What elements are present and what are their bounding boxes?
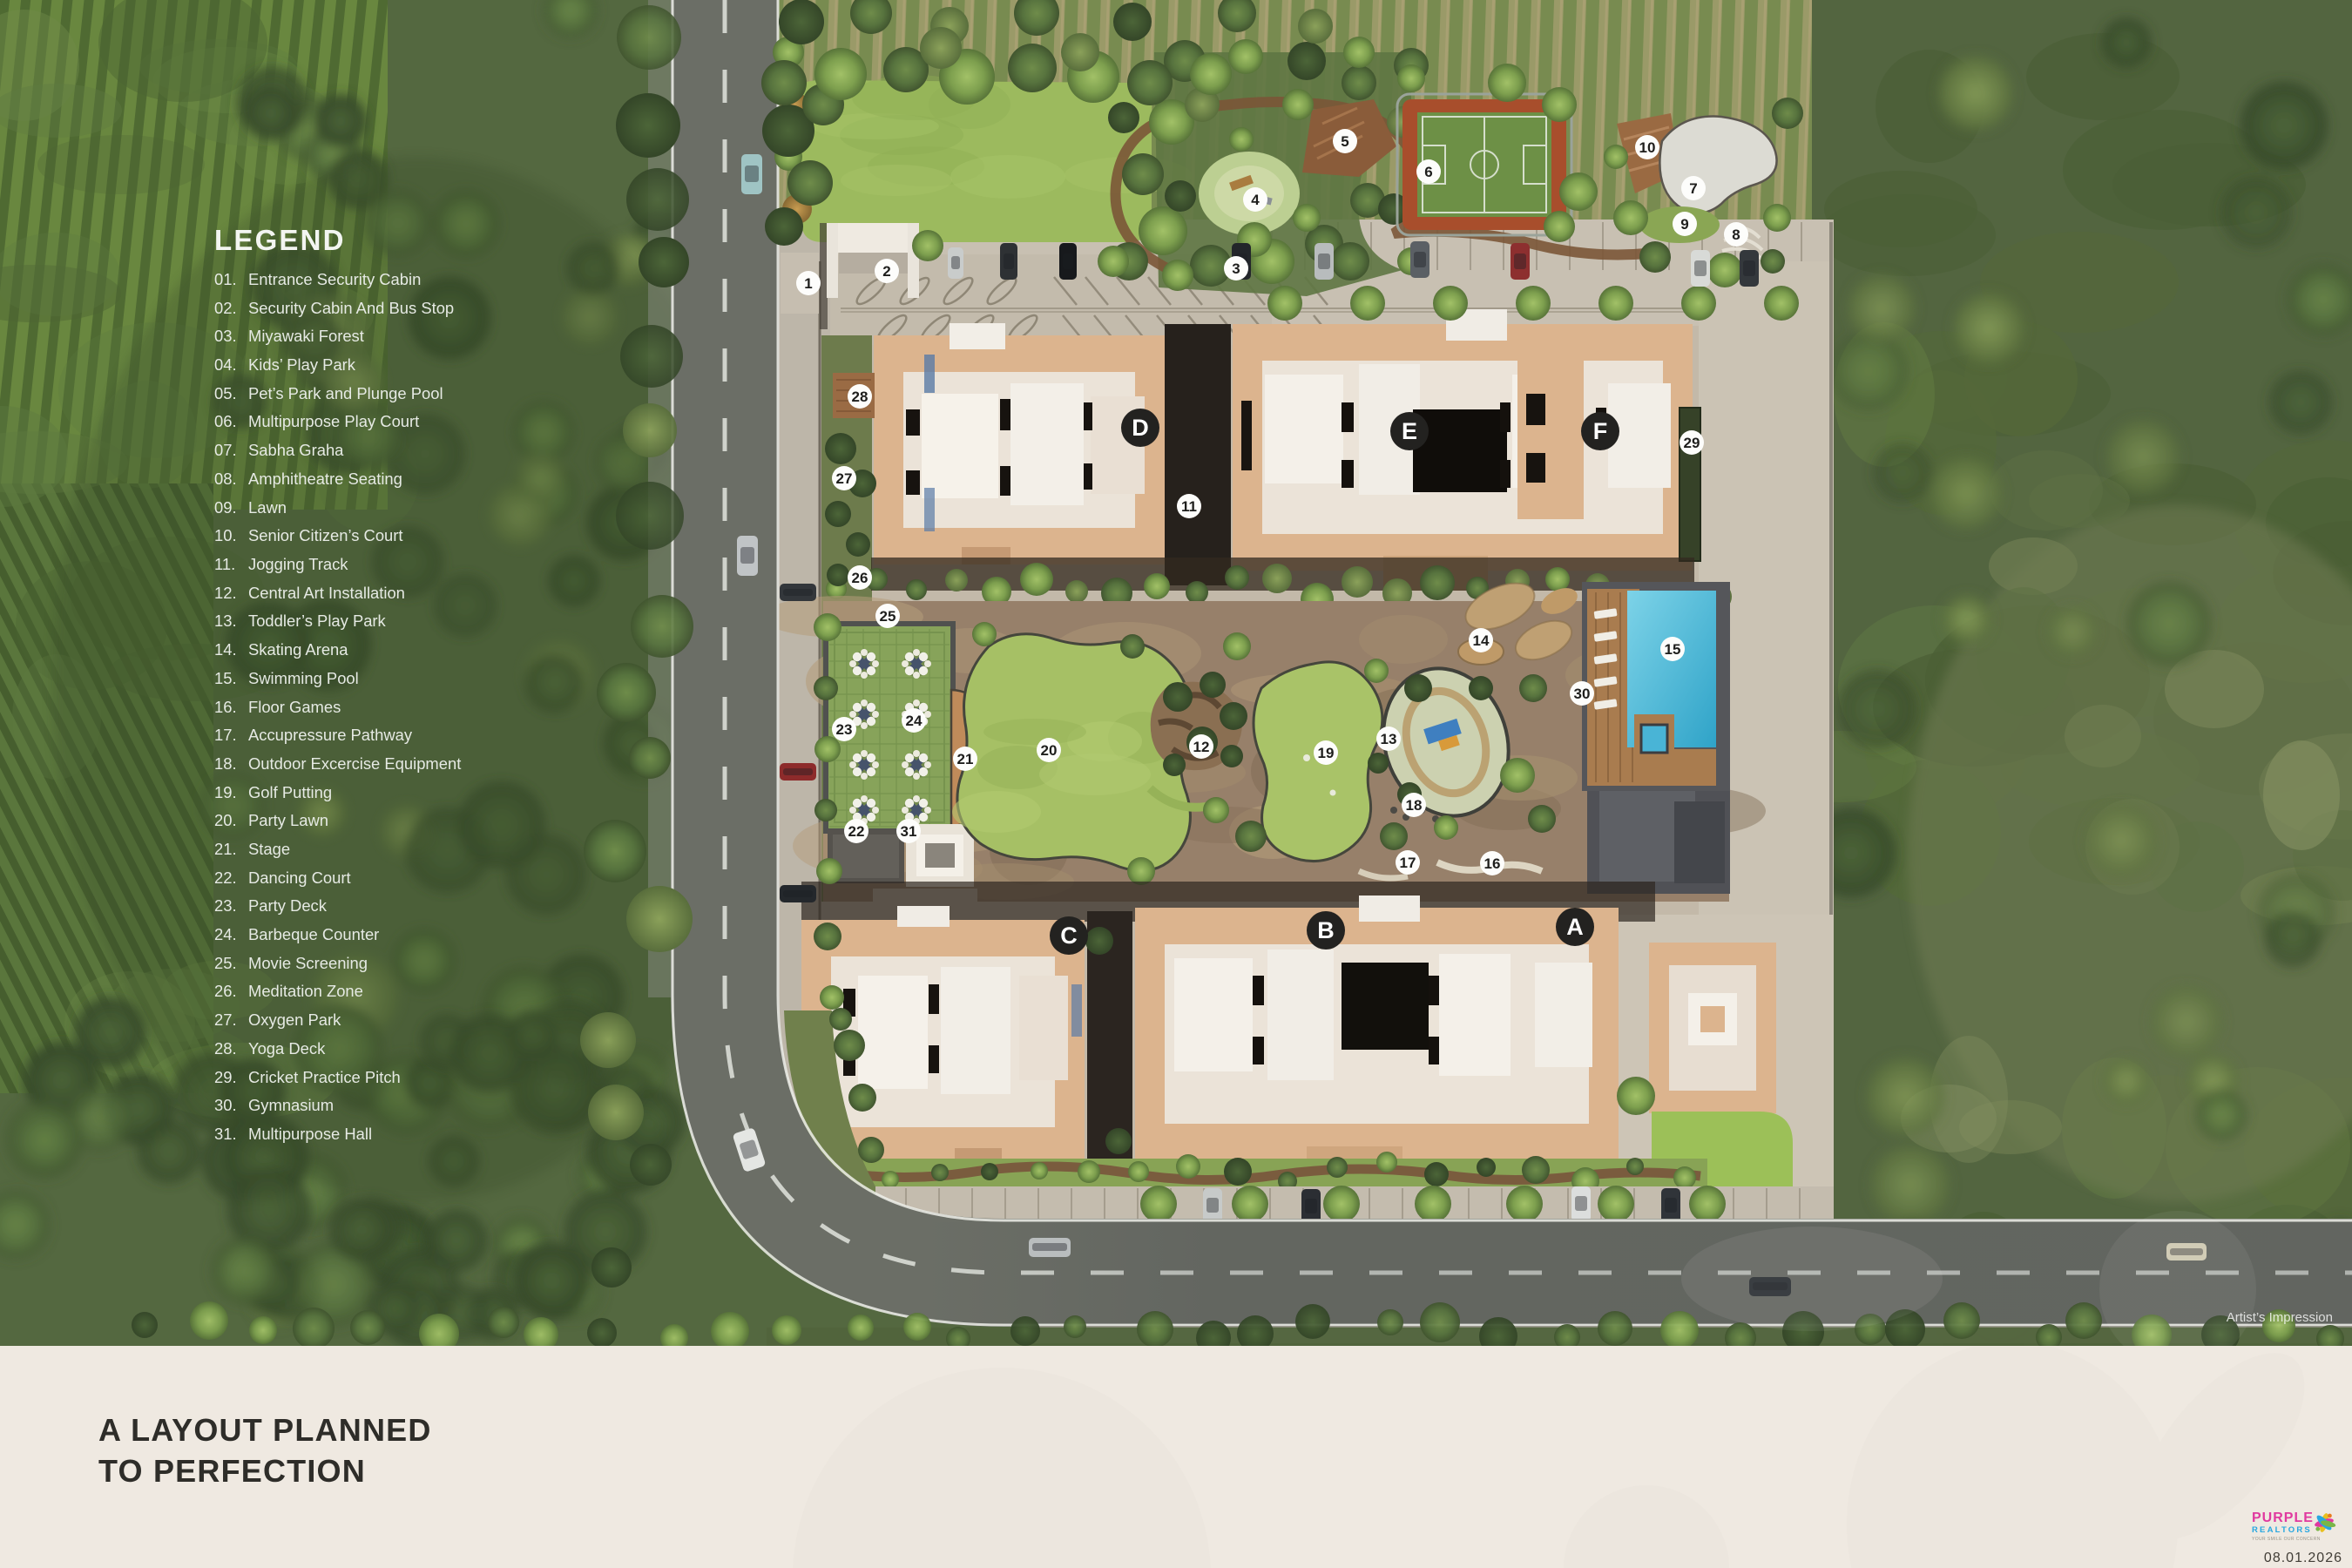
svg-text:03.: 03. [214,327,237,345]
svg-text:15.: 15. [214,669,237,687]
svg-text:Party Deck: Party Deck [248,896,328,915]
svg-text:25.: 25. [214,954,237,972]
svg-text:11: 11 [1181,498,1197,515]
svg-text:TO PERFECTION: TO PERFECTION [98,1453,366,1489]
svg-text:Toddler’s Play Park: Toddler’s Play Park [248,612,387,630]
svg-text:21: 21 [957,751,974,767]
svg-text:5: 5 [1341,133,1348,150]
svg-text:Movie Screening: Movie Screening [248,954,368,972]
svg-text:20.: 20. [214,811,237,829]
svg-text:Security Cabin And Bus Stop: Security Cabin And Bus Stop [248,299,454,317]
svg-text:05.: 05. [214,384,237,402]
svg-text:29: 29 [1684,435,1700,451]
svg-text:11.: 11. [214,555,235,573]
svg-text:29.: 29. [214,1068,237,1086]
svg-text:Swimming Pool: Swimming Pool [248,669,359,687]
svg-text:YOUR SMILE OUR CONCERN: YOUR SMILE OUR CONCERN [2252,1537,2321,1542]
svg-text:08.: 08. [214,470,237,488]
svg-text:17: 17 [1400,855,1416,871]
svg-text:Kids’ Play Park: Kids’ Play Park [248,355,356,374]
svg-text:30: 30 [1574,686,1591,702]
svg-text:Golf Putting: Golf Putting [248,783,332,801]
svg-text:REALTORS: REALTORS [2252,1525,2312,1535]
svg-text:08.01.2026: 08.01.2026 [2264,1551,2342,1565]
svg-text:26: 26 [852,570,868,586]
svg-text:PURPLE: PURPLE [2252,1511,2314,1525]
svg-text:06.: 06. [214,412,237,430]
svg-text:Lawn: Lawn [248,498,287,517]
svg-text:19: 19 [1318,745,1335,761]
svg-text:09.: 09. [214,498,237,517]
svg-text:18.: 18. [214,754,237,773]
svg-text:Party Lawn: Party Lawn [248,811,328,829]
svg-text:8: 8 [1732,226,1740,243]
svg-text:24: 24 [906,713,923,729]
svg-text:D: D [1132,415,1149,441]
svg-text:10.: 10. [214,526,237,544]
svg-text:A LAYOUT PLANNED: A LAYOUT PLANNED [98,1412,432,1448]
svg-text:17.: 17. [214,726,237,744]
svg-text:Gymnasium: Gymnasium [248,1096,334,1114]
svg-text:Miyawaki Forest: Miyawaki Forest [248,327,364,345]
svg-text:28: 28 [852,389,868,405]
svg-text:7: 7 [1689,180,1697,197]
svg-text:Accupressure Pathway: Accupressure Pathway [248,726,413,744]
svg-text:22.: 22. [214,868,237,887]
svg-text:22: 22 [848,823,865,840]
svg-text:B: B [1317,917,1335,943]
svg-text:F: F [1593,418,1608,444]
svg-text:Oxygen Park: Oxygen Park [248,1010,341,1029]
svg-text:16.: 16. [214,698,237,716]
svg-text:Amphitheatre Seating: Amphitheatre Seating [248,470,402,488]
svg-text:15: 15 [1665,641,1681,658]
svg-text:Skating Arena: Skating Arena [248,640,348,659]
svg-text:2: 2 [882,263,890,280]
svg-text:A: A [1566,914,1584,940]
svg-text:31: 31 [901,823,917,840]
svg-text:24.: 24. [214,925,237,943]
svg-text:13.: 13. [214,612,237,630]
svg-text:28.: 28. [214,1039,237,1058]
svg-text:31.: 31. [214,1125,237,1143]
svg-text:Pet’s Park and Plunge Pool: Pet’s Park and Plunge Pool [248,384,443,402]
svg-text:14.: 14. [214,640,237,659]
svg-text:Entrance Security Cabin: Entrance Security Cabin [248,270,421,288]
svg-text:Dancing Court: Dancing Court [248,868,351,887]
svg-text:9: 9 [1680,216,1688,233]
svg-text:Multipurpose Hall: Multipurpose Hall [248,1125,372,1143]
svg-text:4: 4 [1251,192,1260,208]
svg-text:Multipurpose Play Court: Multipurpose Play Court [248,412,419,430]
svg-text:C: C [1060,923,1078,949]
svg-text:12.: 12. [214,584,237,602]
svg-text:Jogging Track: Jogging Track [248,555,348,573]
svg-text:Meditation Zone: Meditation Zone [248,982,363,1000]
svg-text:02.: 02. [214,299,237,317]
svg-text:23.: 23. [214,896,237,915]
svg-text:Central Art Installation: Central Art Installation [248,584,405,602]
svg-text:12: 12 [1193,739,1210,755]
svg-text:18: 18 [1406,797,1423,814]
svg-text:26.: 26. [214,982,237,1000]
svg-text:21.: 21. [214,840,237,858]
svg-text:04.: 04. [214,355,237,374]
svg-text:6: 6 [1424,164,1432,180]
svg-text:Senior Citizen’s Court: Senior Citizen’s Court [248,526,403,544]
svg-text:13: 13 [1381,731,1397,747]
svg-text:Cricket Practice Pitch: Cricket Practice Pitch [248,1068,401,1086]
svg-text:10: 10 [1639,139,1656,156]
svg-text:01.: 01. [214,270,237,288]
svg-text:E: E [1402,418,1417,444]
svg-text:19.: 19. [214,783,237,801]
svg-text:16: 16 [1484,855,1501,872]
svg-text:Yoga Deck: Yoga Deck [248,1039,326,1058]
svg-text:Stage: Stage [248,840,290,858]
svg-text:3: 3 [1232,260,1240,277]
svg-text:Sabha Graha: Sabha Graha [248,441,344,459]
svg-text:30.: 30. [214,1096,237,1114]
svg-text:14: 14 [1473,632,1490,649]
svg-text:1: 1 [804,275,812,292]
svg-text:07.: 07. [214,441,237,459]
svg-text:27: 27 [836,470,853,487]
svg-text:Barbeque Counter: Barbeque Counter [248,925,379,943]
svg-text:Artist’s Impression: Artist’s Impression [2227,1310,2333,1325]
svg-text:23: 23 [836,721,853,738]
svg-text:Outdoor Excercise Equipment: Outdoor Excercise Equipment [248,754,461,773]
svg-text:20: 20 [1041,742,1058,759]
svg-text:25: 25 [880,608,896,625]
svg-text:27.: 27. [214,1010,237,1029]
svg-text:LEGEND: LEGEND [214,224,346,256]
svg-text:Floor Games: Floor Games [248,698,341,716]
